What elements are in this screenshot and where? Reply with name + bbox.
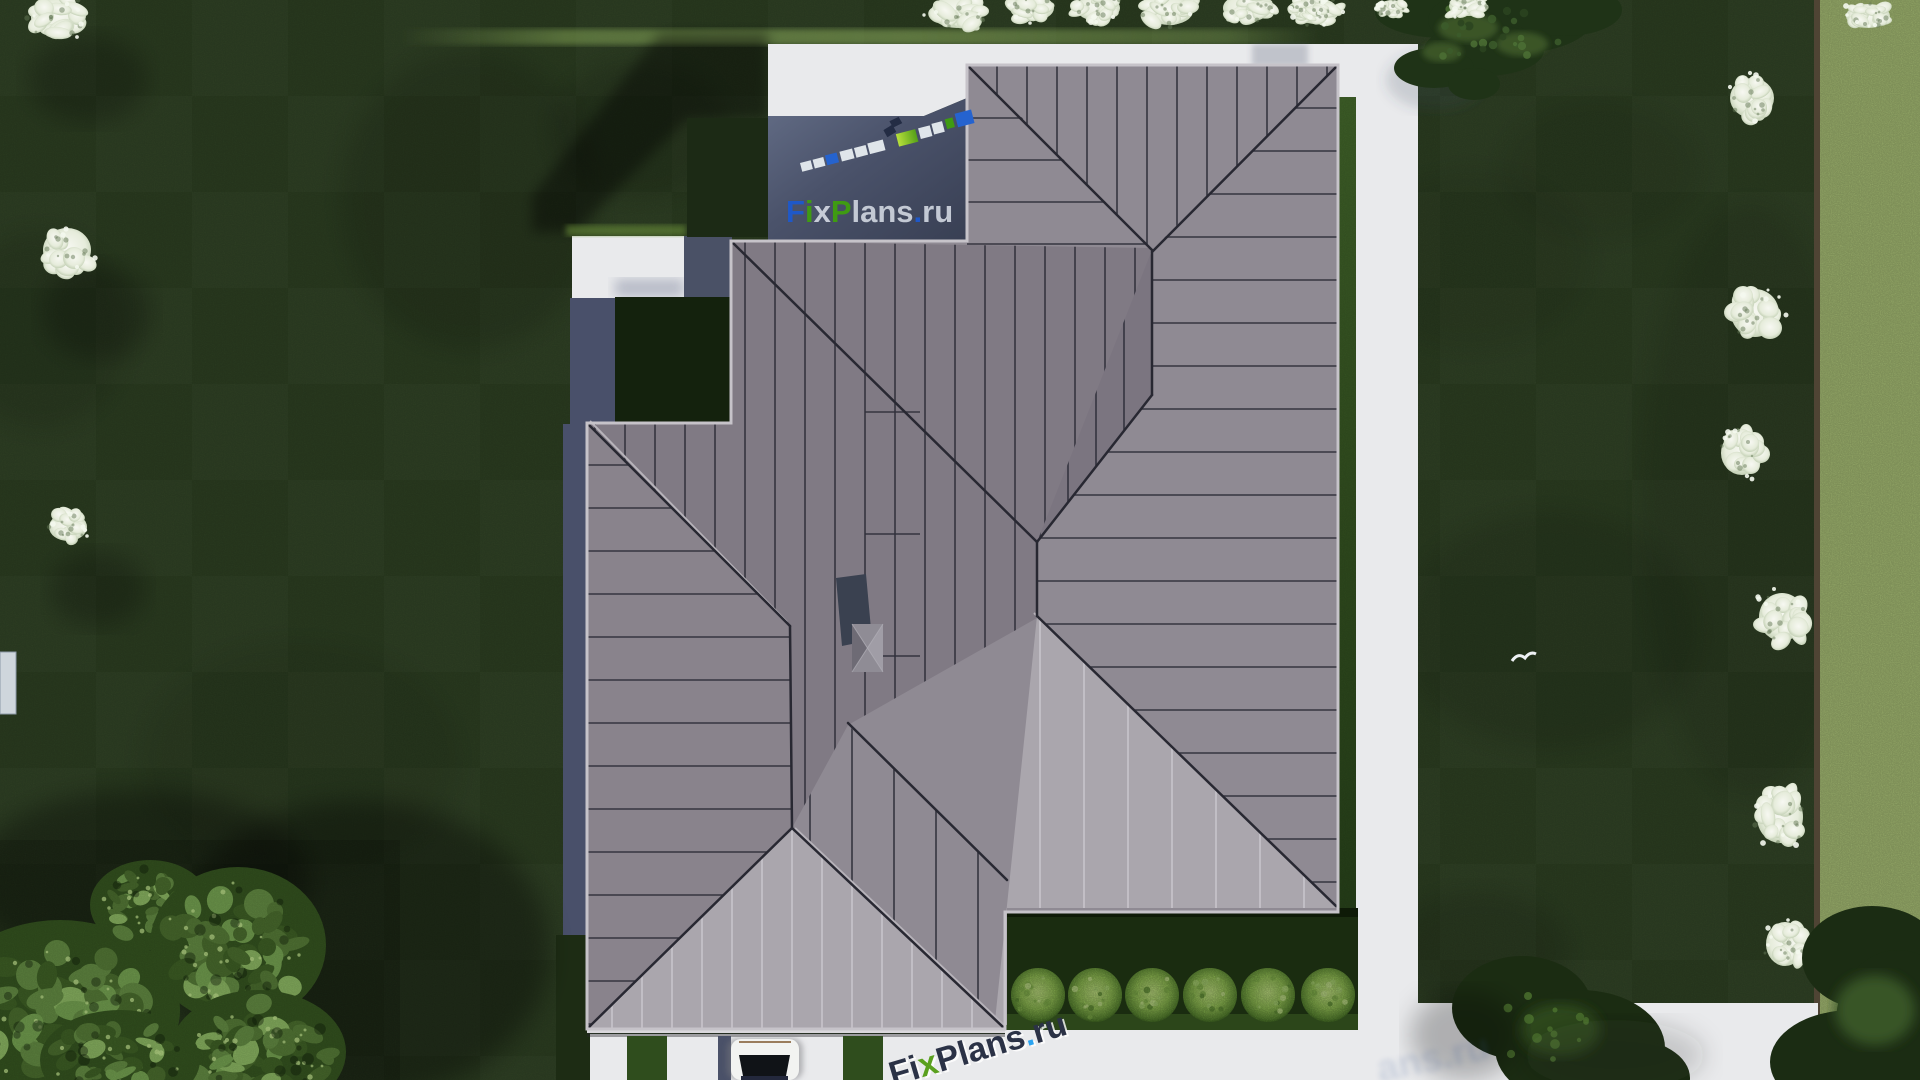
svg-text:FixPlans.ru: FixPlans.ru (786, 194, 953, 229)
